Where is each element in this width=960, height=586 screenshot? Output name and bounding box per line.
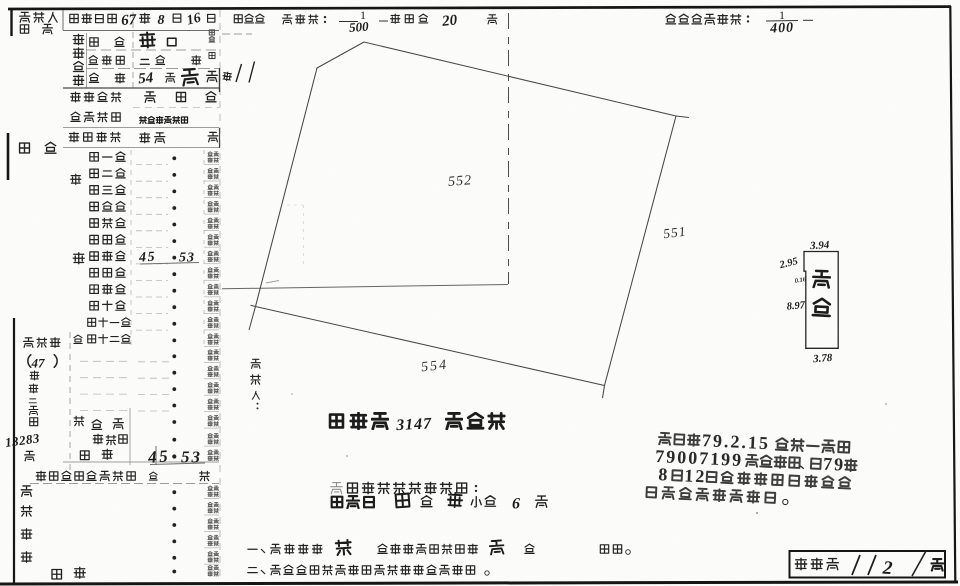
svg-text:12: 12 <box>684 465 707 486</box>
svg-text:47: 47 <box>31 356 46 371</box>
svg-text:2: 2 <box>881 557 893 579</box>
svg-text:3.78: 3.78 <box>812 352 834 365</box>
svg-text:554: 554 <box>420 358 448 376</box>
svg-text:8: 8 <box>158 13 165 28</box>
svg-text:8: 8 <box>658 464 670 484</box>
svg-text:8.97: 8.97 <box>786 300 806 313</box>
svg-text:20: 20 <box>440 12 458 30</box>
svg-text:6: 6 <box>512 496 520 513</box>
svg-text:1: 1 <box>779 8 785 22</box>
svg-text:79: 79 <box>823 454 846 475</box>
svg-text:54: 54 <box>138 70 155 87</box>
svg-text:552: 552 <box>448 173 473 190</box>
svg-text:67: 67 <box>121 12 138 29</box>
svg-text:551: 551 <box>662 224 687 242</box>
svg-text:400: 400 <box>769 20 795 36</box>
svg-text:3147: 3147 <box>395 415 433 434</box>
svg-text:500: 500 <box>349 19 370 35</box>
svg-text:3.94: 3.94 <box>809 239 830 252</box>
